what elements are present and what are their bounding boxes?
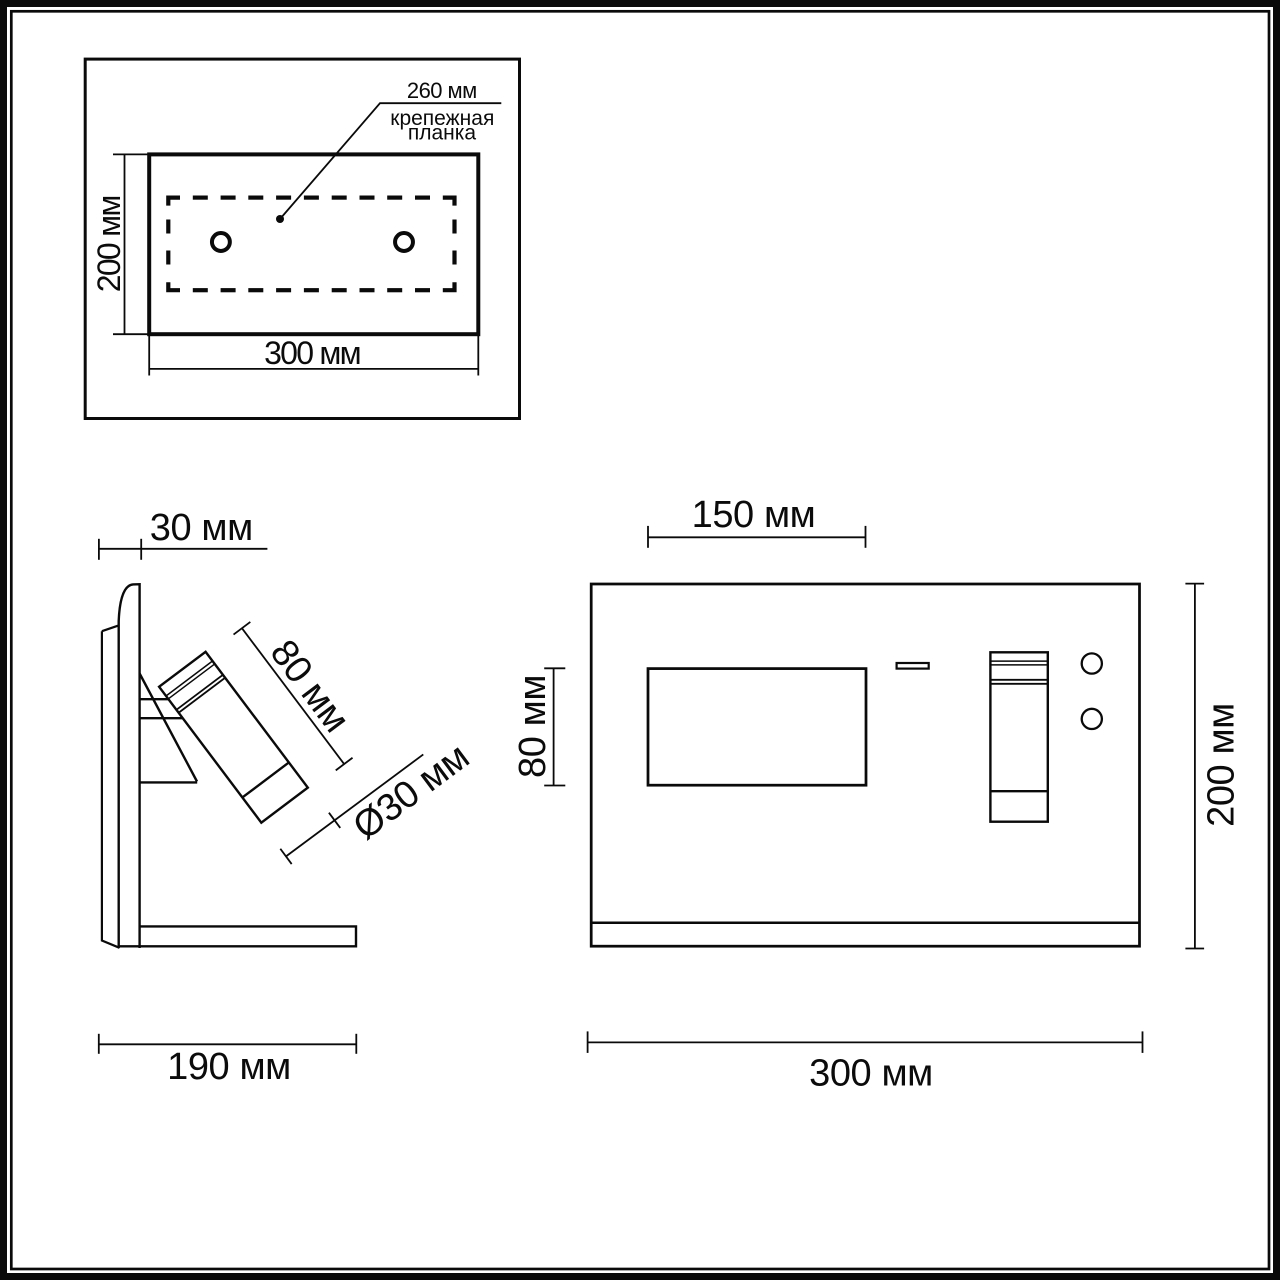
svg-text:30 мм: 30 мм [150, 507, 253, 549]
svg-text:80 мм: 80 мм [512, 675, 554, 778]
svg-text:150 мм: 150 мм [692, 494, 816, 536]
svg-text:260 мм: 260 мм [407, 78, 477, 103]
svg-text:190 мм: 190 мм [167, 1046, 291, 1088]
svg-text:300 мм: 300 мм [809, 1053, 933, 1095]
svg-text:200 мм: 200 мм [91, 196, 127, 292]
svg-text:200 мм: 200 мм [1201, 703, 1243, 827]
svg-text:планка: планка [408, 122, 477, 145]
svg-text:300 мм: 300 мм [264, 335, 360, 371]
